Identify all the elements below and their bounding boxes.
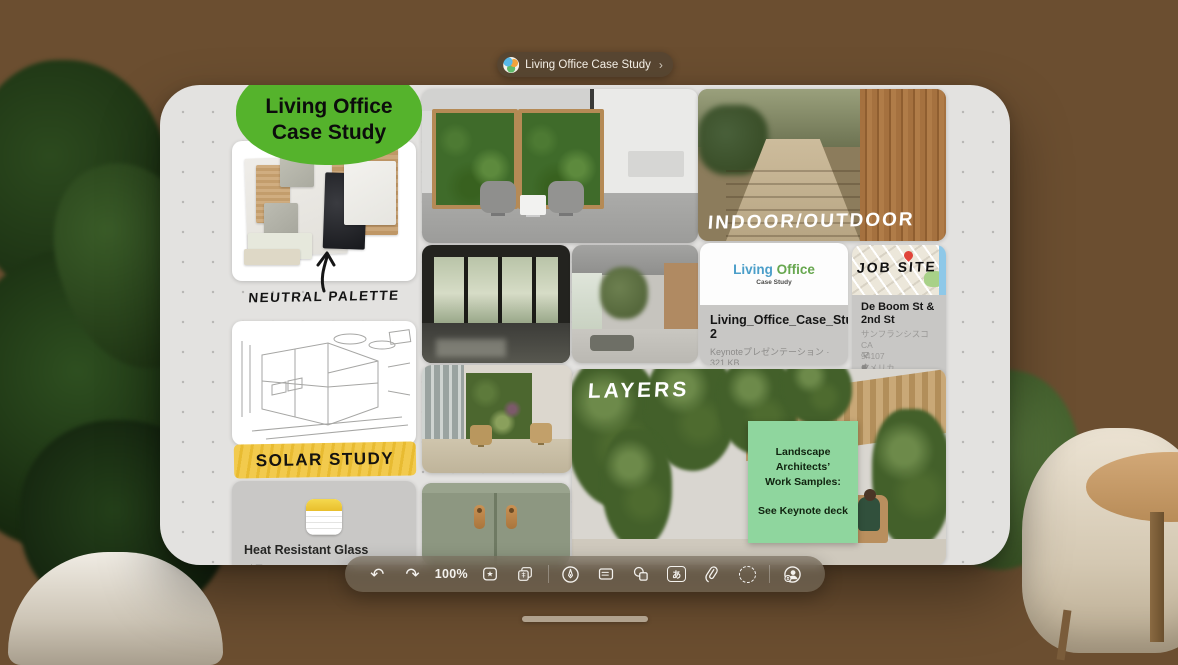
note-title: Heat Resistant Glass: [244, 543, 368, 557]
keynote-filename: Living_Office_Case_Study 2: [710, 313, 840, 342]
freeform-toolbar: ↶ ↷ 100% あ: [345, 556, 825, 592]
sticky-note-icon[interactable]: [593, 561, 619, 587]
beige-swatch: [244, 249, 300, 265]
insert-widget-icon[interactable]: [477, 561, 503, 587]
gray-swatch: [264, 203, 298, 237]
selection-icon[interactable]: [734, 561, 760, 587]
keynote-brand-sub: Case Study: [756, 279, 791, 286]
board-item-photo-terrace-green-wall[interactable]: [422, 365, 572, 473]
board-item-photo-green-wall-lounge[interactable]: [422, 89, 698, 243]
freeform-board-window: Living Office Case Study NEUTRAL PALETTE: [160, 85, 1010, 565]
attachment-icon[interactable]: [699, 561, 725, 587]
map-title: De Boom St & 2nd St: [861, 301, 941, 327]
collaborate-icon[interactable]: [780, 561, 806, 587]
board-item-sticky-note[interactable]: Landscape Architects’ Work Samples: See …: [748, 421, 858, 543]
window-title-pill[interactable]: Living Office Case Study ›: [497, 52, 673, 77]
table-leg: [1150, 512, 1164, 642]
board-item-note-card[interactable]: Heat Resistant Glass メモ: [232, 481, 416, 565]
window-title: Living Office Case Study: [525, 59, 651, 71]
keynote-brand-office: Office: [777, 262, 815, 277]
notes-app-icon: [306, 499, 342, 535]
keynote-preview: Living Office Case Study: [700, 243, 848, 305]
map-address: サンフランシスコ CA 94107 アメリカ: [861, 329, 941, 374]
board-item-photo-indoor-outdoor[interactable]: INDOOR/OUTDOOR: [698, 89, 946, 241]
architecture-sketch: [232, 321, 416, 445]
board-item-photo-lobby[interactable]: [572, 245, 698, 363]
board-item-solar-sketch[interactable]: [232, 321, 416, 445]
duplicate-icon[interactable]: [512, 561, 538, 587]
board-item-solar-label[interactable]: SOLAR STUDY: [234, 441, 417, 478]
keynote-brand-living: Living: [733, 262, 773, 277]
window-drag-bar[interactable]: [522, 616, 648, 622]
chevron-right-icon: ›: [659, 58, 663, 72]
job-site-label: JOB SITE: [856, 258, 937, 275]
text-box-icon[interactable]: あ: [664, 561, 690, 587]
note-subtitle: メモ: [244, 560, 264, 565]
board-item-photo-glass-interior[interactable]: [422, 245, 570, 363]
board-item-map-card[interactable]: JOB SITE De Boom St & 2nd St サンフランシスコ CA…: [852, 245, 946, 381]
toolbar-separator: [548, 565, 549, 583]
markup-icon[interactable]: [558, 561, 584, 587]
indoor-outdoor-label: INDOOR/OUTDOOR: [707, 209, 915, 235]
board-item-keynote-file[interactable]: Living Office Case Study Living_Office_C…: [700, 243, 848, 365]
redo-icon[interactable]: ↷: [400, 561, 426, 587]
keynote-file-meta: Keynoteプレゼンテーション · 321 KB: [710, 345, 844, 365]
zoom-level[interactable]: 100%: [435, 561, 468, 587]
board-item-photo-cabinet[interactable]: [422, 483, 570, 565]
toolbar-separator: [769, 565, 770, 583]
quartz-swatch: [344, 161, 396, 225]
freeform-app-icon: [503, 57, 519, 73]
layers-label: LAYERS: [587, 378, 690, 404]
shapes-icon[interactable]: [628, 561, 654, 587]
hand-drawn-arrow[interactable]: [306, 243, 346, 293]
undo-icon[interactable]: ↶: [364, 561, 390, 587]
